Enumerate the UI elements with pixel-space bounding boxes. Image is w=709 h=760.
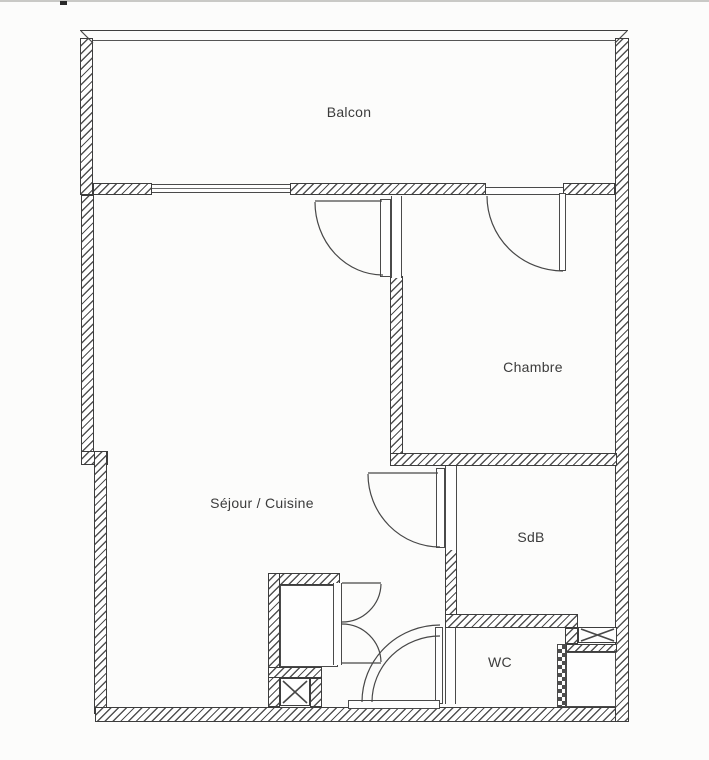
bedroom-door-leaf xyxy=(380,199,391,277)
room-label-wc: WC xyxy=(488,654,512,670)
room-label-chambre: Chambre xyxy=(503,359,563,375)
wall-right xyxy=(615,38,629,722)
closet-door-swing-arc-top xyxy=(342,584,381,622)
wall-balcony-left xyxy=(80,38,93,195)
wc-closet-partition xyxy=(557,644,566,707)
kitchen-shaft-right-band xyxy=(310,678,322,707)
balcony-parapet-left-segment xyxy=(93,183,152,195)
bedroom-balcony-door-swing-arc xyxy=(487,196,563,271)
bedroom-door-swing-arc xyxy=(315,202,383,275)
closet-right-of-wc xyxy=(566,652,616,707)
entry-threshold xyxy=(348,700,440,709)
wall-left-upper xyxy=(81,195,94,458)
wc-door-opening xyxy=(445,628,456,704)
bathroom-door-leaf xyxy=(436,468,445,548)
kitchen-block-left-band xyxy=(268,573,280,707)
kitchen-shaft-box xyxy=(280,678,310,706)
wc-door-swing-arc-outer xyxy=(362,625,440,702)
room-label-balcon: Balcon xyxy=(327,104,372,120)
bedroom-balcony-door-sill xyxy=(486,187,563,195)
closet-door-swing-arc-bottom xyxy=(342,624,381,662)
wall-vent-left-stub xyxy=(565,628,578,644)
bedroom-balcony-door-leaf xyxy=(559,193,566,271)
balcony-parapet-right-segment xyxy=(563,183,615,195)
bathroom-door-swing-arc xyxy=(368,474,440,547)
wall-wc-top xyxy=(445,614,578,628)
window-mid-line xyxy=(152,188,290,189)
wall-bedroom-bathroom xyxy=(390,453,617,466)
kitchen-closet-interior xyxy=(280,585,338,667)
bathroom-door-opening xyxy=(445,466,457,550)
bathroom-vent-box xyxy=(578,627,617,643)
wall-left-lower xyxy=(94,451,107,714)
living-room-window xyxy=(152,184,290,193)
bedroom-door-opening xyxy=(391,196,402,278)
wall-bottom xyxy=(95,707,629,722)
floor-plan: Balcon Chambre Séjour / Cuisine SdB WC xyxy=(0,0,709,760)
wc-door-swing-arc-inner xyxy=(372,636,440,702)
kitchen-closet-door-frame xyxy=(333,583,342,665)
room-label-sejour-cuisine: Séjour / Cuisine xyxy=(210,495,314,511)
wall-strip-under-vent xyxy=(566,644,617,652)
wall-partition-bedroom xyxy=(390,276,403,466)
balcony-parapet-mid-segment xyxy=(290,183,486,195)
wc-door-leaf xyxy=(435,627,443,704)
kitchen-block-bottom-band xyxy=(268,667,322,678)
room-label-sdb: SdB xyxy=(517,529,544,545)
balcony-front-wall xyxy=(80,30,628,41)
